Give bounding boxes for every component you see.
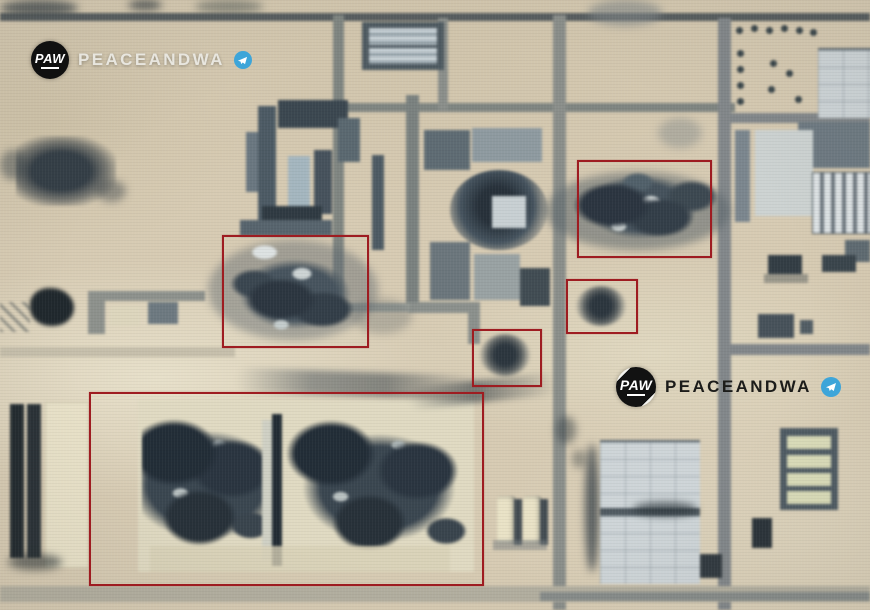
paw-logo: PAW bbox=[31, 41, 69, 79]
damage-annotation-box bbox=[222, 235, 369, 348]
damage-annotation-box bbox=[566, 279, 638, 334]
telegram-icon bbox=[234, 51, 252, 69]
paw-logo-text: PAW bbox=[620, 378, 652, 392]
telegram-icon bbox=[821, 377, 841, 397]
damage-annotation-box bbox=[89, 392, 484, 586]
brand-text: PEACEANDWA bbox=[78, 50, 225, 70]
paw-logo: PAW bbox=[616, 367, 656, 407]
paw-logo-underline bbox=[41, 67, 59, 69]
watermark-middle-right: PAW PEACEANDWA bbox=[616, 367, 841, 407]
damage-annotation-box bbox=[577, 160, 712, 258]
annotation-layer bbox=[0, 0, 870, 610]
brand-text: PEACEANDWA bbox=[665, 377, 812, 397]
paw-logo-text: PAW bbox=[35, 52, 65, 65]
satellite-image-viewport: PAW PEACEANDWA PAW PEACEANDWA bbox=[0, 0, 870, 610]
watermark-top-left: PAW PEACEANDWA bbox=[31, 41, 252, 79]
paw-logo-underline bbox=[627, 394, 645, 396]
damage-annotation-box bbox=[472, 329, 542, 387]
